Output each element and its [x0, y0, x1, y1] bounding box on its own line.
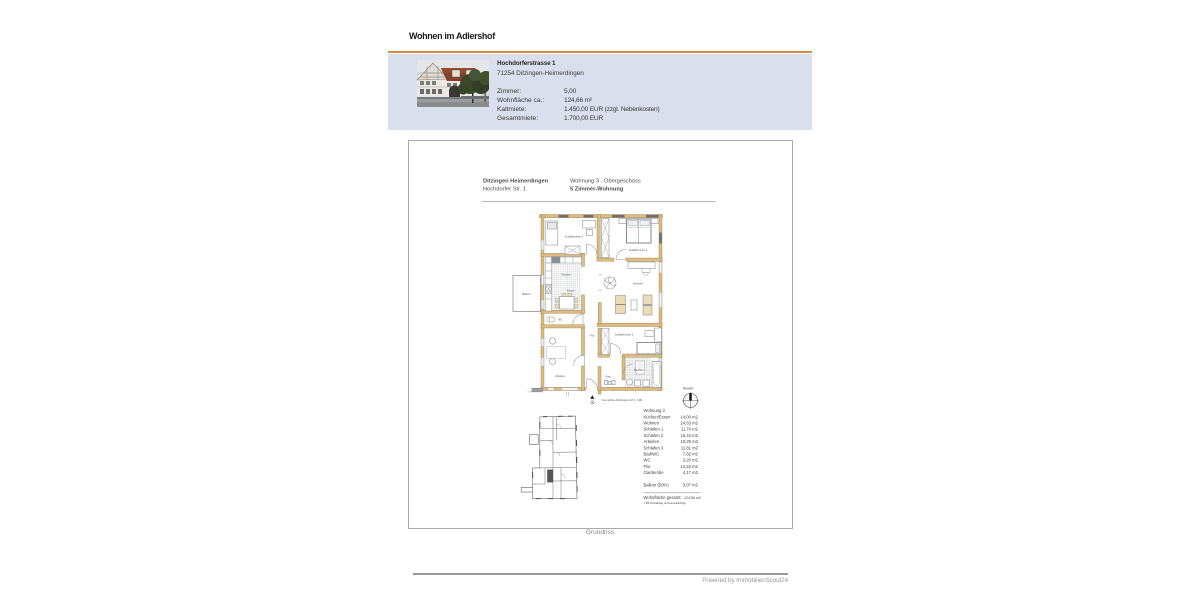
- svg-text:14,00 m2: 14,00 m2: [681, 414, 699, 419]
- svg-text:Wohnfläche gesamt:: Wohnfläche gesamt:: [644, 495, 682, 500]
- svg-text:124,66 m2: 124,66 m2: [684, 496, 701, 500]
- svg-text:Kochen: Kochen: [561, 273, 571, 277]
- svg-text:Wohnen: Wohnen: [633, 282, 643, 286]
- svg-text:Arbeiten: Arbeiten: [555, 374, 566, 378]
- svg-text:Schlafzimmer 1: Schlafzimmer 1: [565, 235, 584, 239]
- svg-text:11,81 m2: 11,81 m2: [681, 445, 699, 450]
- svg-text:12,53 m2: 12,53 m2: [681, 464, 699, 469]
- svg-text:3,07 m2: 3,07 m2: [683, 482, 699, 487]
- svg-text:Hochdorfer Str. 1: Hochdorfer Str. 1: [483, 187, 526, 193]
- svg-text:WC: WC: [644, 458, 651, 463]
- svg-text:5 Zimmer-Wohnung: 5 Zimmer-Wohnung: [570, 187, 624, 193]
- svg-text:24,63 m2: 24,63 m2: [681, 421, 699, 426]
- svg-text:DG: DG: [599, 290, 603, 292]
- svg-text:Schlafzimmer 3: Schlafzimmer 3: [615, 333, 634, 337]
- svg-text:Flur: Flur: [590, 334, 595, 338]
- svg-text:Arbeiten: Arbeiten: [644, 439, 660, 444]
- svg-text:Ditzingen Heimerdingen: Ditzingen Heimerdingen: [483, 179, 549, 185]
- svg-text:Essen: Essen: [567, 289, 575, 293]
- svg-text:Grundriss-Illustration M 1 :1: Grundriss-Illustration M 1 :100: [602, 398, 643, 402]
- svg-text:Schlafen 2: Schlafen 2: [644, 433, 664, 438]
- svg-text:7,82 m2: 7,82 m2: [683, 452, 699, 457]
- svg-text:Bad/WC: Bad/WC: [634, 368, 644, 372]
- svg-text:+ 5% Putzabzug und berücksicht: + 5% Putzabzug und berücksichtigt: [644, 501, 686, 505]
- svg-text:Gast: Gast: [605, 375, 611, 379]
- svg-text:Schlafzimmer 2: Schlafzimmer 2: [629, 248, 648, 252]
- svg-text:Flur: Flur: [644, 464, 652, 469]
- svg-text:4,17 m2: 4,17 m2: [683, 470, 699, 475]
- svg-text:WC: WC: [558, 318, 563, 322]
- svg-text:16,44 m2: 16,44 m2: [681, 433, 699, 438]
- svg-text:Balkon (50%): Balkon (50%): [644, 482, 670, 487]
- svg-text:Wohnung 3: Wohnung 3: [644, 408, 666, 413]
- svg-text:Bad/WC: Bad/WC: [644, 452, 660, 457]
- svg-text:Garderobe: Garderobe: [644, 470, 665, 475]
- svg-text:Schlafen 1: Schlafen 1: [644, 427, 664, 432]
- svg-text:Norden: Norden: [683, 387, 694, 391]
- svg-text:Küchen/Essen: Küchen/Essen: [644, 414, 672, 419]
- svg-text:Wohnen: Wohnen: [644, 421, 660, 426]
- svg-text:Wohnung 3 - Obergeschoss: Wohnung 3 - Obergeschoss: [570, 179, 641, 185]
- svg-text:10,25 m2: 10,25 m2: [681, 439, 699, 444]
- svg-text:Balkon: Balkon: [522, 292, 531, 296]
- svg-text:Schlafen 3: Schlafen 3: [644, 445, 664, 450]
- svg-text:11,74 m2: 11,74 m2: [681, 427, 699, 432]
- svg-text:3,20 m2: 3,20 m2: [683, 458, 699, 463]
- svg-text:OG: OG: [599, 275, 603, 277]
